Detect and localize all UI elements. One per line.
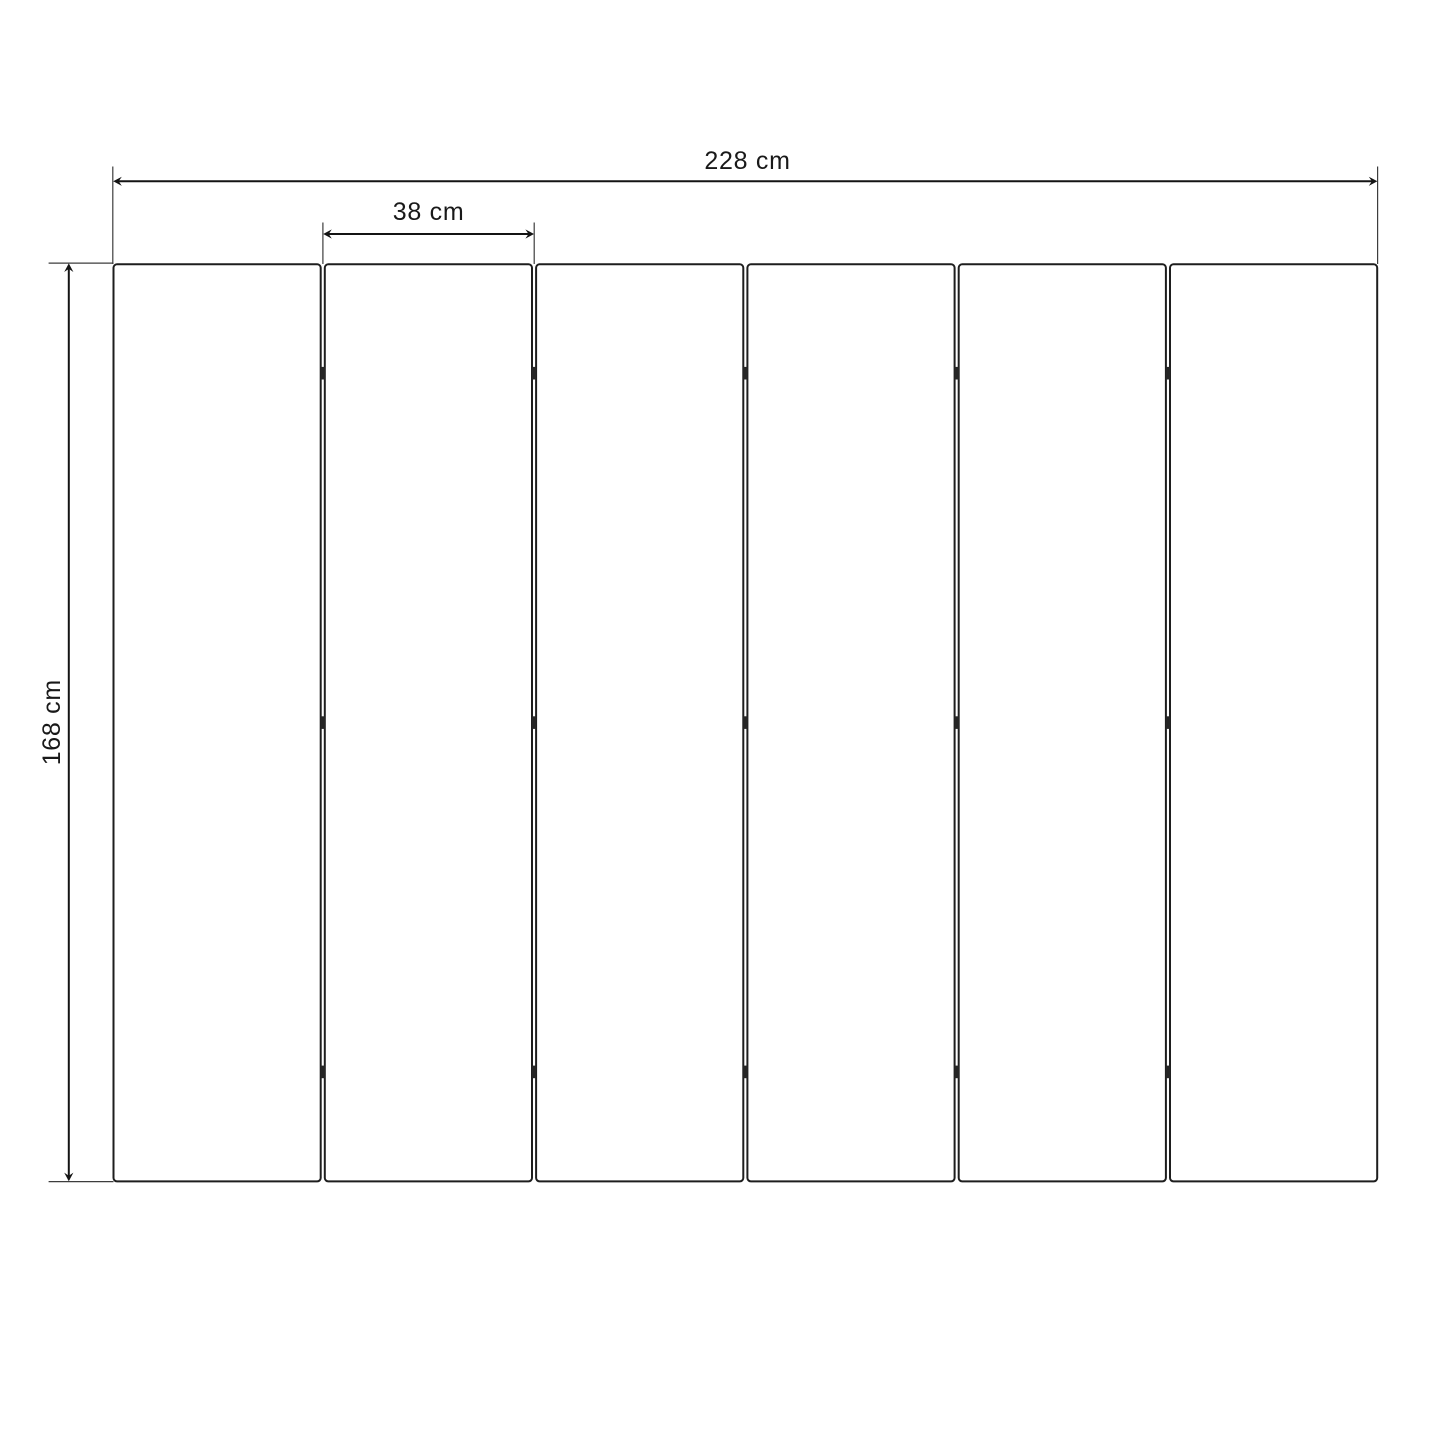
svg-text:168 cm: 168 cm bbox=[38, 679, 66, 765]
svg-text:38 cm: 38 cm bbox=[393, 198, 465, 226]
svg-text:228 cm: 228 cm bbox=[704, 147, 790, 175]
